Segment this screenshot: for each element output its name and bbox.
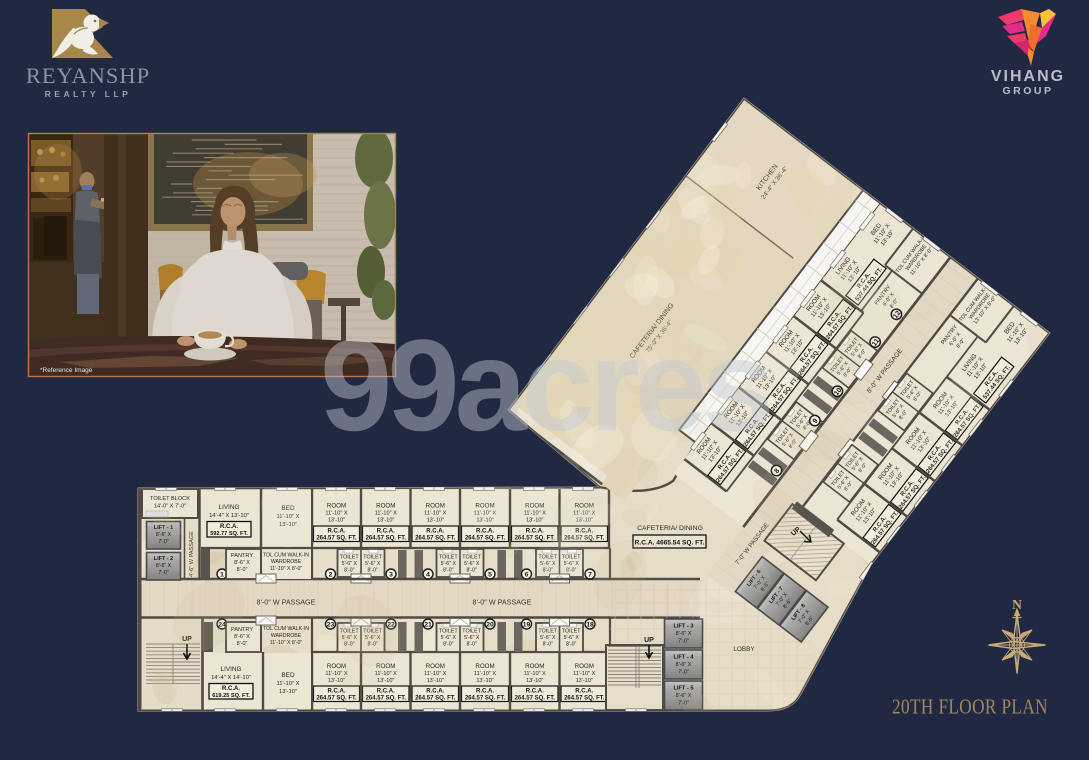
- svg-text:264.57 SQ. FT.: 264.57 SQ. FT.: [465, 536, 506, 542]
- svg-text:LIVING: LIVING: [221, 666, 242, 673]
- svg-text:99acres: 99acres: [320, 312, 769, 458]
- svg-text:TOILET: TOILET: [462, 555, 481, 561]
- svg-text:14'-4" X 14'-10": 14'-4" X 14'-10": [211, 675, 251, 681]
- svg-text:264.57 SQ. FT.: 264.57 SQ. FT.: [366, 536, 407, 542]
- svg-text:LIVING: LIVING: [219, 504, 240, 511]
- svg-text:5'-6" X: 5'-6" X: [564, 635, 580, 641]
- svg-text:592.77 SQ. FT.: 592.77 SQ. FT.: [210, 531, 248, 537]
- svg-text:WARDROBE: WARDROBE: [271, 633, 302, 639]
- svg-text:ROOM: ROOM: [475, 663, 494, 670]
- svg-text:TOILET: TOILET: [562, 629, 581, 635]
- svg-text:21: 21: [424, 622, 432, 629]
- svg-text:20TH FLOOR PLAN: 20TH FLOOR PLAN: [892, 696, 1048, 719]
- svg-text:8'-0": 8'-0": [237, 567, 248, 573]
- svg-text:8'-6" X: 8'-6" X: [676, 631, 692, 637]
- svg-text:264.57 SQ. FT.: 264.57 SQ. FT.: [415, 696, 456, 702]
- svg-text:7'-0": 7'-0": [678, 670, 689, 676]
- svg-text:14'-4" X 13'-10": 14'-4" X 13'-10": [209, 513, 249, 519]
- svg-text:TOILET: TOILET: [538, 629, 557, 635]
- svg-text:13'-10": 13'-10": [476, 678, 493, 684]
- svg-text:8'-0": 8'-0": [543, 642, 553, 648]
- svg-text:8'-6" X: 8'-6" X: [156, 563, 172, 569]
- svg-text:11'-10" X 8'-0": 11'-10" X 8'-0": [270, 640, 303, 646]
- svg-text:8'-0" W PASSAGE: 8'-0" W PASSAGE: [257, 598, 316, 607]
- svg-text:13'-10": 13'-10": [576, 678, 593, 684]
- svg-text:18: 18: [586, 622, 594, 629]
- svg-text:R.C.A.: R.C.A.: [328, 689, 346, 695]
- svg-text:ROOM: ROOM: [426, 503, 445, 510]
- svg-text:R.C.A.: R.C.A.: [526, 529, 544, 535]
- svg-text:*Reference Image: *Reference Image: [40, 367, 93, 374]
- svg-text:ROOM: ROOM: [525, 663, 544, 670]
- svg-text:19: 19: [523, 622, 531, 629]
- svg-text:GROUP: GROUP: [1002, 85, 1053, 97]
- svg-text:ROOM: ROOM: [426, 663, 445, 670]
- svg-text:5'-6" X: 5'-6" X: [464, 635, 480, 641]
- svg-text:R.C.A.: R.C.A.: [328, 529, 346, 535]
- svg-text:CAFETERIA/ DINING: CAFETERIA/ DINING: [637, 525, 703, 532]
- svg-text:1: 1: [220, 572, 224, 579]
- svg-text:R.C.A.: R.C.A.: [222, 686, 240, 692]
- svg-text:13'-10": 13'-10": [377, 678, 394, 684]
- svg-text:LIFT - 4: LIFT - 4: [674, 655, 695, 661]
- svg-text:5: 5: [488, 572, 492, 579]
- svg-text:3: 3: [389, 572, 393, 579]
- svg-text:R.C.A.: R.C.A.: [377, 529, 395, 535]
- svg-text:8'-0": 8'-0": [443, 642, 453, 648]
- svg-text:5'-6" X: 5'-6" X: [464, 561, 480, 567]
- svg-text:13'-10": 13'-10": [377, 518, 394, 524]
- svg-text:264.57 SQ. FT.: 264.57 SQ. FT.: [415, 536, 456, 542]
- svg-text:7: 7: [588, 572, 592, 579]
- svg-text:11'-10" X: 11'-10" X: [524, 671, 546, 677]
- svg-text:LIFT - 3: LIFT - 3: [674, 624, 694, 630]
- svg-text:TOILET BLOCK: TOILET BLOCK: [150, 496, 190, 502]
- svg-text:11'-10" X: 11'-10" X: [573, 671, 595, 677]
- svg-text:7'-0": 7'-0": [678, 639, 689, 645]
- svg-text:20: 20: [486, 622, 494, 629]
- svg-text:13'-10": 13'-10": [328, 518, 345, 524]
- svg-text:LOBBY: LOBBY: [733, 646, 755, 653]
- svg-text:8'-0" W PASSAGE: 8'-0" W PASSAGE: [473, 598, 532, 607]
- svg-text:13'-10": 13'-10": [279, 689, 297, 695]
- svg-text:TOILET: TOILET: [363, 555, 382, 561]
- svg-text:11'-10" X 8'-0": 11'-10" X 8'-0": [270, 566, 303, 572]
- svg-text:4'-6" W PASSAGE: 4'-6" W PASSAGE: [189, 531, 195, 577]
- svg-text:BED: BED: [281, 672, 295, 679]
- svg-text:8'-0": 8'-0": [368, 568, 378, 574]
- svg-text:UP: UP: [644, 637, 654, 644]
- svg-text:4: 4: [426, 572, 430, 579]
- svg-text:PANTRY: PANTRY: [231, 553, 253, 559]
- svg-text:LIFT - 5: LIFT - 5: [674, 686, 694, 692]
- svg-text:5'-6" X: 5'-6" X: [342, 561, 358, 567]
- svg-text:R.C.A.: R.C.A.: [377, 689, 395, 695]
- svg-text:13'-10": 13'-10": [526, 678, 543, 684]
- svg-text:8'-0": 8'-0": [467, 642, 477, 648]
- svg-text:11'-10" X: 11'-10" X: [524, 511, 546, 517]
- svg-text:8'-6" X: 8'-6" X: [676, 662, 692, 668]
- svg-text:11'-10" X: 11'-10" X: [424, 511, 446, 517]
- svg-text:7'-0": 7'-0": [158, 570, 168, 576]
- svg-text:R.C.A.: R.C.A.: [476, 529, 494, 535]
- svg-text:13'-10": 13'-10": [526, 518, 543, 524]
- svg-text:R.C.A.: R.C.A.: [220, 524, 238, 530]
- svg-text:5'-6" X: 5'-6" X: [441, 561, 457, 567]
- svg-text:264.57 SQ. FT.: 264.57 SQ. FT.: [316, 536, 357, 542]
- svg-text:R.C.A.: R.C.A.: [426, 529, 444, 535]
- svg-text:13'-10": 13'-10": [427, 518, 444, 524]
- svg-text:14'-0" X 7'-0": 14'-0" X 7'-0": [154, 504, 186, 510]
- svg-text:11'-10" X: 11'-10" X: [325, 511, 347, 517]
- svg-text:8'-6" X: 8'-6" X: [234, 560, 250, 566]
- svg-text:7'-0": 7'-0": [158, 539, 168, 545]
- svg-text:8'-0": 8'-0": [566, 642, 576, 648]
- svg-text:R.C.A.: R.C.A.: [575, 689, 593, 695]
- svg-text:5'-6" X: 5'-6" X: [540, 635, 556, 641]
- svg-text:WARDROBE: WARDROBE: [271, 559, 302, 565]
- svg-text:11'-10" X: 11'-10" X: [474, 671, 496, 677]
- svg-text:11'-10" X: 11'-10" X: [276, 681, 299, 687]
- svg-text:2: 2: [329, 572, 333, 579]
- svg-text:R.C.A.: R.C.A.: [426, 689, 444, 695]
- svg-text:8'-0": 8'-0": [344, 568, 354, 574]
- svg-text:5'-6" X: 5'-6" X: [365, 561, 381, 567]
- svg-text:619.25 SQ. FT.: 619.25 SQ. FT.: [212, 693, 250, 699]
- svg-text:TOILET: TOILET: [439, 629, 458, 635]
- svg-text:R.C.A. 4665.54 SQ. FT.: R.C.A. 4665.54 SQ. FT.: [635, 540, 705, 547]
- svg-text:ROOM: ROOM: [327, 503, 346, 510]
- svg-text:11'-10" X: 11'-10" X: [424, 671, 446, 677]
- svg-text:REYANSHP: REYANSHP: [26, 63, 150, 88]
- svg-text:TOILET: TOILET: [462, 629, 481, 635]
- svg-text:TOL CUM WALK-IN: TOL CUM WALK-IN: [263, 626, 309, 632]
- svg-text:VIHANG: VIHANG: [991, 68, 1065, 85]
- svg-text:23: 23: [327, 622, 335, 629]
- svg-text:8'-0": 8'-0": [237, 641, 248, 647]
- svg-text:TOL CUM WALK-IN: TOL CUM WALK-IN: [263, 553, 309, 559]
- svg-text:TOILET: TOILET: [340, 555, 359, 561]
- svg-text:13'-10": 13'-10": [427, 678, 444, 684]
- svg-text:264.57 SQ. FT.: 264.57 SQ. FT.: [564, 696, 605, 702]
- svg-text:8'-0": 8'-0": [443, 568, 453, 574]
- svg-text:5'-6" X: 5'-6" X: [441, 635, 457, 641]
- svg-text:ROOM: ROOM: [376, 503, 395, 510]
- svg-text:N: N: [1012, 597, 1022, 612]
- svg-text:REALTY LLP: REALTY LLP: [45, 89, 132, 99]
- svg-text:11'-10" X: 11'-10" X: [375, 511, 397, 517]
- svg-text:8'-6" X: 8'-6" X: [234, 634, 250, 640]
- svg-text:11'-10" X: 11'-10" X: [375, 671, 397, 677]
- svg-text:8'-0": 8'-0": [467, 568, 477, 574]
- svg-text:ROOM: ROOM: [575, 663, 594, 670]
- svg-text:LIFT - 2: LIFT - 2: [154, 556, 173, 562]
- svg-text:TOILET: TOILET: [439, 555, 458, 561]
